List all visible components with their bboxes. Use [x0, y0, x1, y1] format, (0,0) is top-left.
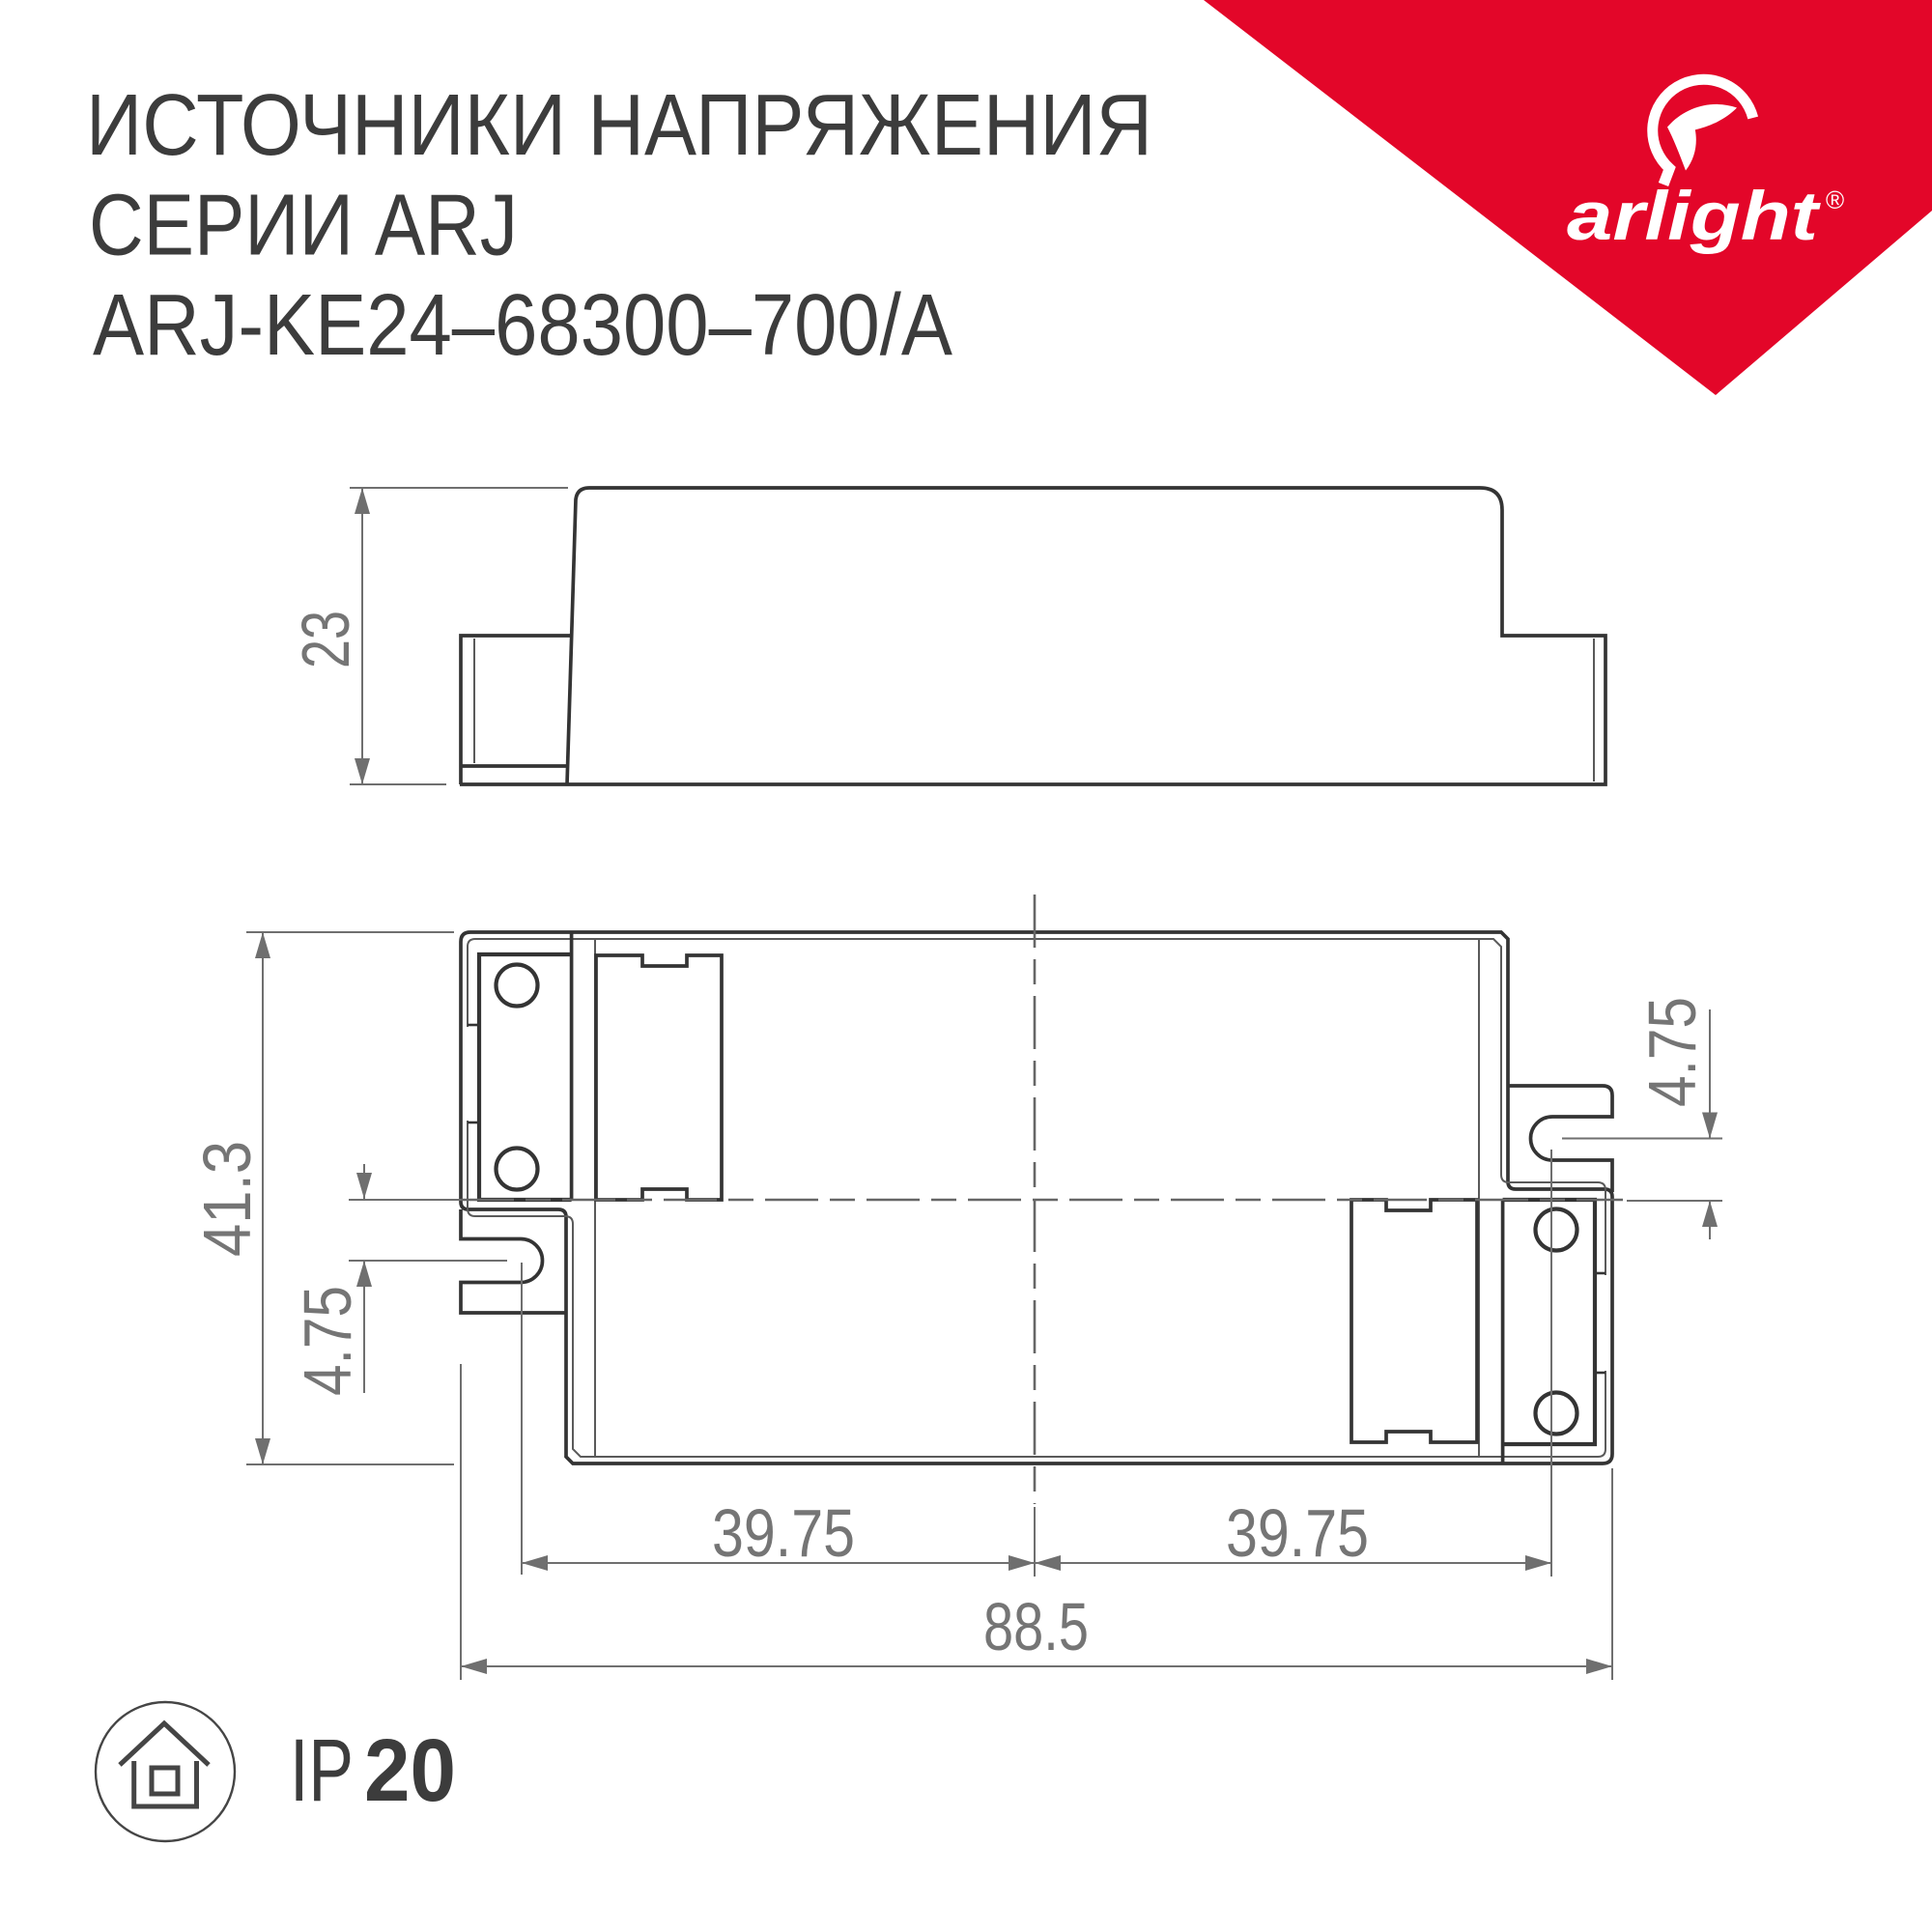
svg-text:39.75: 39.75	[1226, 1495, 1369, 1571]
svg-text:®: ®	[1826, 185, 1844, 214]
svg-text:ИСТОЧНИКИ НАПРЯЖЕНИЯ: ИСТОЧНИКИ НАПРЯЖЕНИЯ	[86, 77, 1152, 174]
svg-text:arlight: arlight	[1567, 179, 1822, 255]
svg-text:4.75: 4.75	[1634, 997, 1710, 1107]
svg-text:IP: IP	[290, 1721, 354, 1820]
svg-text:20: 20	[364, 1721, 456, 1820]
svg-text:88.5: 88.5	[983, 1589, 1089, 1664]
svg-text:4.75: 4.75	[290, 1286, 365, 1396]
svg-text:СЕРИИ ARJ: СЕРИИ ARJ	[89, 178, 518, 274]
svg-text:39.75: 39.75	[712, 1495, 855, 1571]
svg-text:41.3: 41.3	[189, 1141, 265, 1257]
svg-text:ARJ-KE24–68300–700/A: ARJ-KE24–68300–700/A	[93, 277, 952, 374]
svg-text:23: 23	[288, 611, 363, 668]
